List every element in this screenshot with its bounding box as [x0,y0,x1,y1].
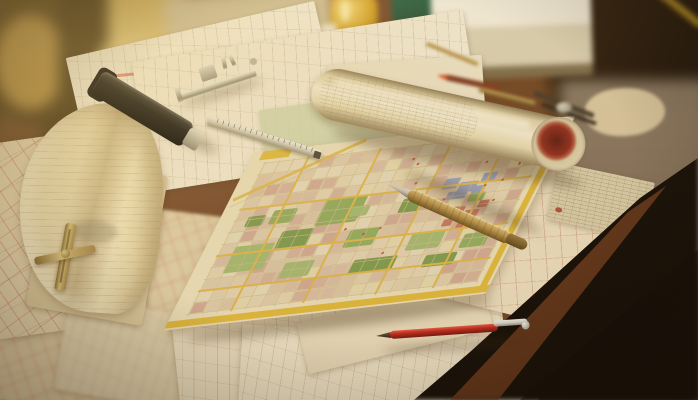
caliper-prong [220,56,227,70]
caliper-prong [228,54,237,67]
red-pencil-tip [436,72,448,80]
caliper-end-screw [250,58,257,65]
red-pen-tip [376,332,391,339]
brass-rod [478,87,535,106]
red-tip-pencil [446,74,500,91]
caliper-slider [198,64,218,82]
window-glow-blob [0,15,65,110]
brass-pencil-small [425,42,478,67]
trammel-cross-tool [30,215,120,300]
yellow-pencil [652,0,698,29]
desk-scene [0,0,698,400]
vernier-caliper [170,50,270,105]
red-map-dot [555,207,563,213]
compass-hinge [556,102,572,113]
brass-instrument-highlight [340,0,350,22]
trammel-screw [61,249,70,258]
drafting-tools-cluster [410,40,610,140]
red-pen-end-button [521,320,530,330]
